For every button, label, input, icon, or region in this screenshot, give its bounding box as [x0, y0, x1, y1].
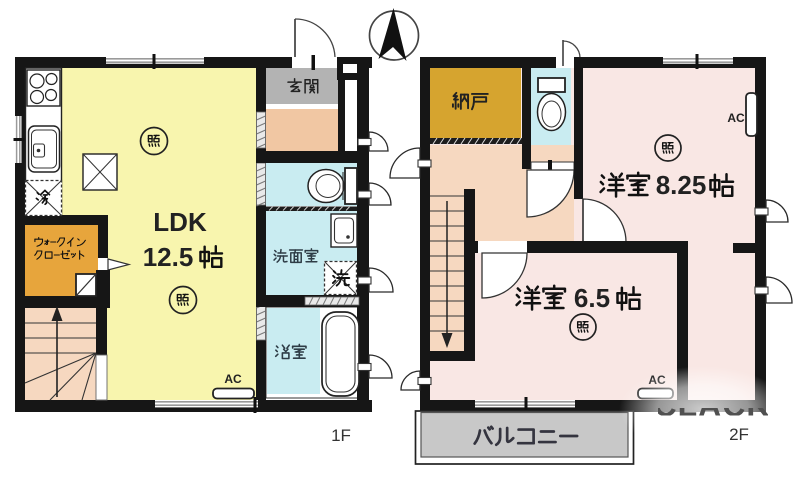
svg-text:LDK: LDK	[153, 207, 207, 237]
svg-text:8.25: 8.25	[656, 170, 707, 200]
svg-text:1F: 1F	[331, 426, 351, 445]
svg-text:6.5: 6.5	[574, 283, 610, 313]
svg-text:AC: AC	[224, 372, 242, 386]
svg-text:12.5: 12.5	[143, 242, 194, 272]
svg-text:2F: 2F	[729, 425, 749, 444]
svg-text:AC: AC	[727, 111, 745, 125]
